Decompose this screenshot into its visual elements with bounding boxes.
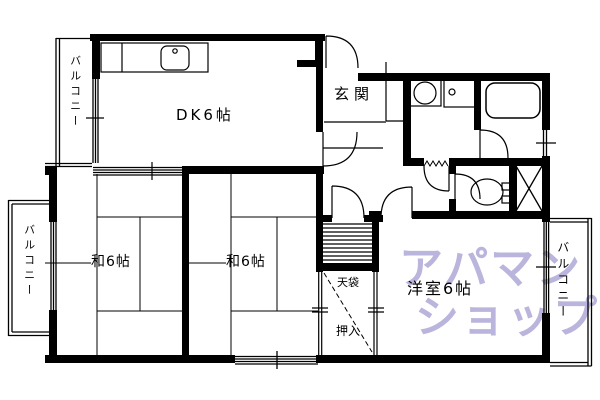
kitchen-counter-icon bbox=[101, 43, 208, 72]
closet-label: 押入 bbox=[336, 325, 360, 339]
japanese-room-left-label: 和6帖 bbox=[91, 254, 131, 270]
walls bbox=[45, 34, 550, 363]
dining-kitchen-label: DK6帖 bbox=[176, 107, 234, 124]
japanese-room-center-label: 和6帖 bbox=[226, 254, 266, 270]
entrance-label: 玄関 bbox=[334, 86, 374, 103]
balcony-top-left-label: バルコニー bbox=[68, 55, 81, 130]
tatami-lines bbox=[45, 174, 318, 355]
kitchen-sink-icon bbox=[161, 46, 189, 70]
threshold-zigzag bbox=[424, 161, 448, 166]
washing-machine-icon bbox=[409, 80, 441, 106]
wash-basin-icon bbox=[444, 80, 476, 107]
upper-closet-label: 天袋 bbox=[337, 277, 359, 290]
western-room-label: 洋室6帖 bbox=[407, 280, 473, 298]
balcony-middle-left-label: バルコニー bbox=[22, 224, 35, 299]
floor-plan-linework bbox=[0, 0, 600, 400]
floor-plan: アパマン ショップ bbox=[0, 0, 600, 400]
sliding-partition bbox=[93, 162, 182, 180]
balcony-right-label: バルコニー bbox=[555, 241, 569, 321]
toilet-icon bbox=[471, 179, 511, 205]
pipe-space-x-icon bbox=[516, 166, 542, 211]
bathtub-icon bbox=[486, 83, 540, 118]
storage-shelves-icon bbox=[323, 224, 372, 260]
